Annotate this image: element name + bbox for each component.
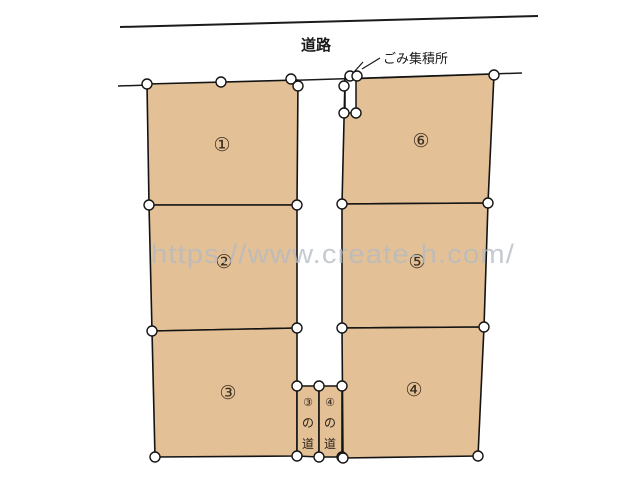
- plot-6-number: ⑥: [412, 131, 429, 152]
- garbage-leader-line: [362, 58, 380, 69]
- access-path-3-label: ③ の 道: [302, 397, 314, 451]
- plot-1-number: ①: [213, 135, 230, 156]
- survey-marker: [292, 200, 302, 210]
- survey-marker: [473, 451, 483, 461]
- access-path-4-char-1: の: [324, 416, 336, 430]
- survey-marker: [142, 79, 152, 89]
- survey-marker: [338, 453, 348, 463]
- survey-marker: [337, 323, 347, 333]
- survey-marker: [150, 452, 160, 462]
- survey-marker: [314, 381, 324, 391]
- survey-marker: [352, 71, 362, 81]
- survey-marker: [337, 199, 347, 209]
- road-far-edge-line: [120, 16, 538, 27]
- survey-marker: [216, 77, 226, 87]
- survey-marker: [479, 322, 489, 332]
- plot-3-number: ③: [219, 383, 236, 404]
- garbage-station-label: ごみ集積所: [383, 51, 448, 66]
- access-path-3-char-0: ③: [303, 397, 313, 409]
- access-path-3-char-1: の: [302, 416, 314, 430]
- survey-marker: [144, 200, 154, 210]
- survey-marker: [147, 326, 157, 336]
- survey-marker: [293, 81, 303, 91]
- garbage-leader-tick: [354, 62, 363, 72]
- access-path-4-char-2: 道: [324, 437, 336, 451]
- access-path-3-char-2: 道: [302, 437, 314, 451]
- survey-marker: [292, 451, 302, 461]
- survey-marker: [483, 198, 493, 208]
- plot-4-number: ④: [405, 380, 422, 401]
- site-plan-svg: 道路 ごみ集積所 ① ② ③ ④ ⑤ ⑥ ③ の 道 ④ の 道 https:/…: [0, 0, 640, 480]
- survey-marker: [351, 108, 361, 118]
- access-path-4-label: ④ の 道: [324, 397, 336, 451]
- survey-marker: [337, 381, 347, 391]
- access-path-4-char-0: ④: [325, 397, 335, 409]
- road-label: 道路: [301, 36, 332, 54]
- survey-marker: [339, 108, 349, 118]
- survey-marker: [292, 323, 302, 333]
- survey-marker: [339, 81, 349, 91]
- survey-marker: [314, 452, 324, 462]
- watermark-text: https://www.create-h.com/: [151, 239, 515, 269]
- site-plan-canvas: 道路 ごみ集積所 ① ② ③ ④ ⑤ ⑥ ③ の 道 ④ の 道 https:/…: [0, 0, 640, 480]
- survey-marker: [292, 381, 302, 391]
- survey-marker: [489, 70, 499, 80]
